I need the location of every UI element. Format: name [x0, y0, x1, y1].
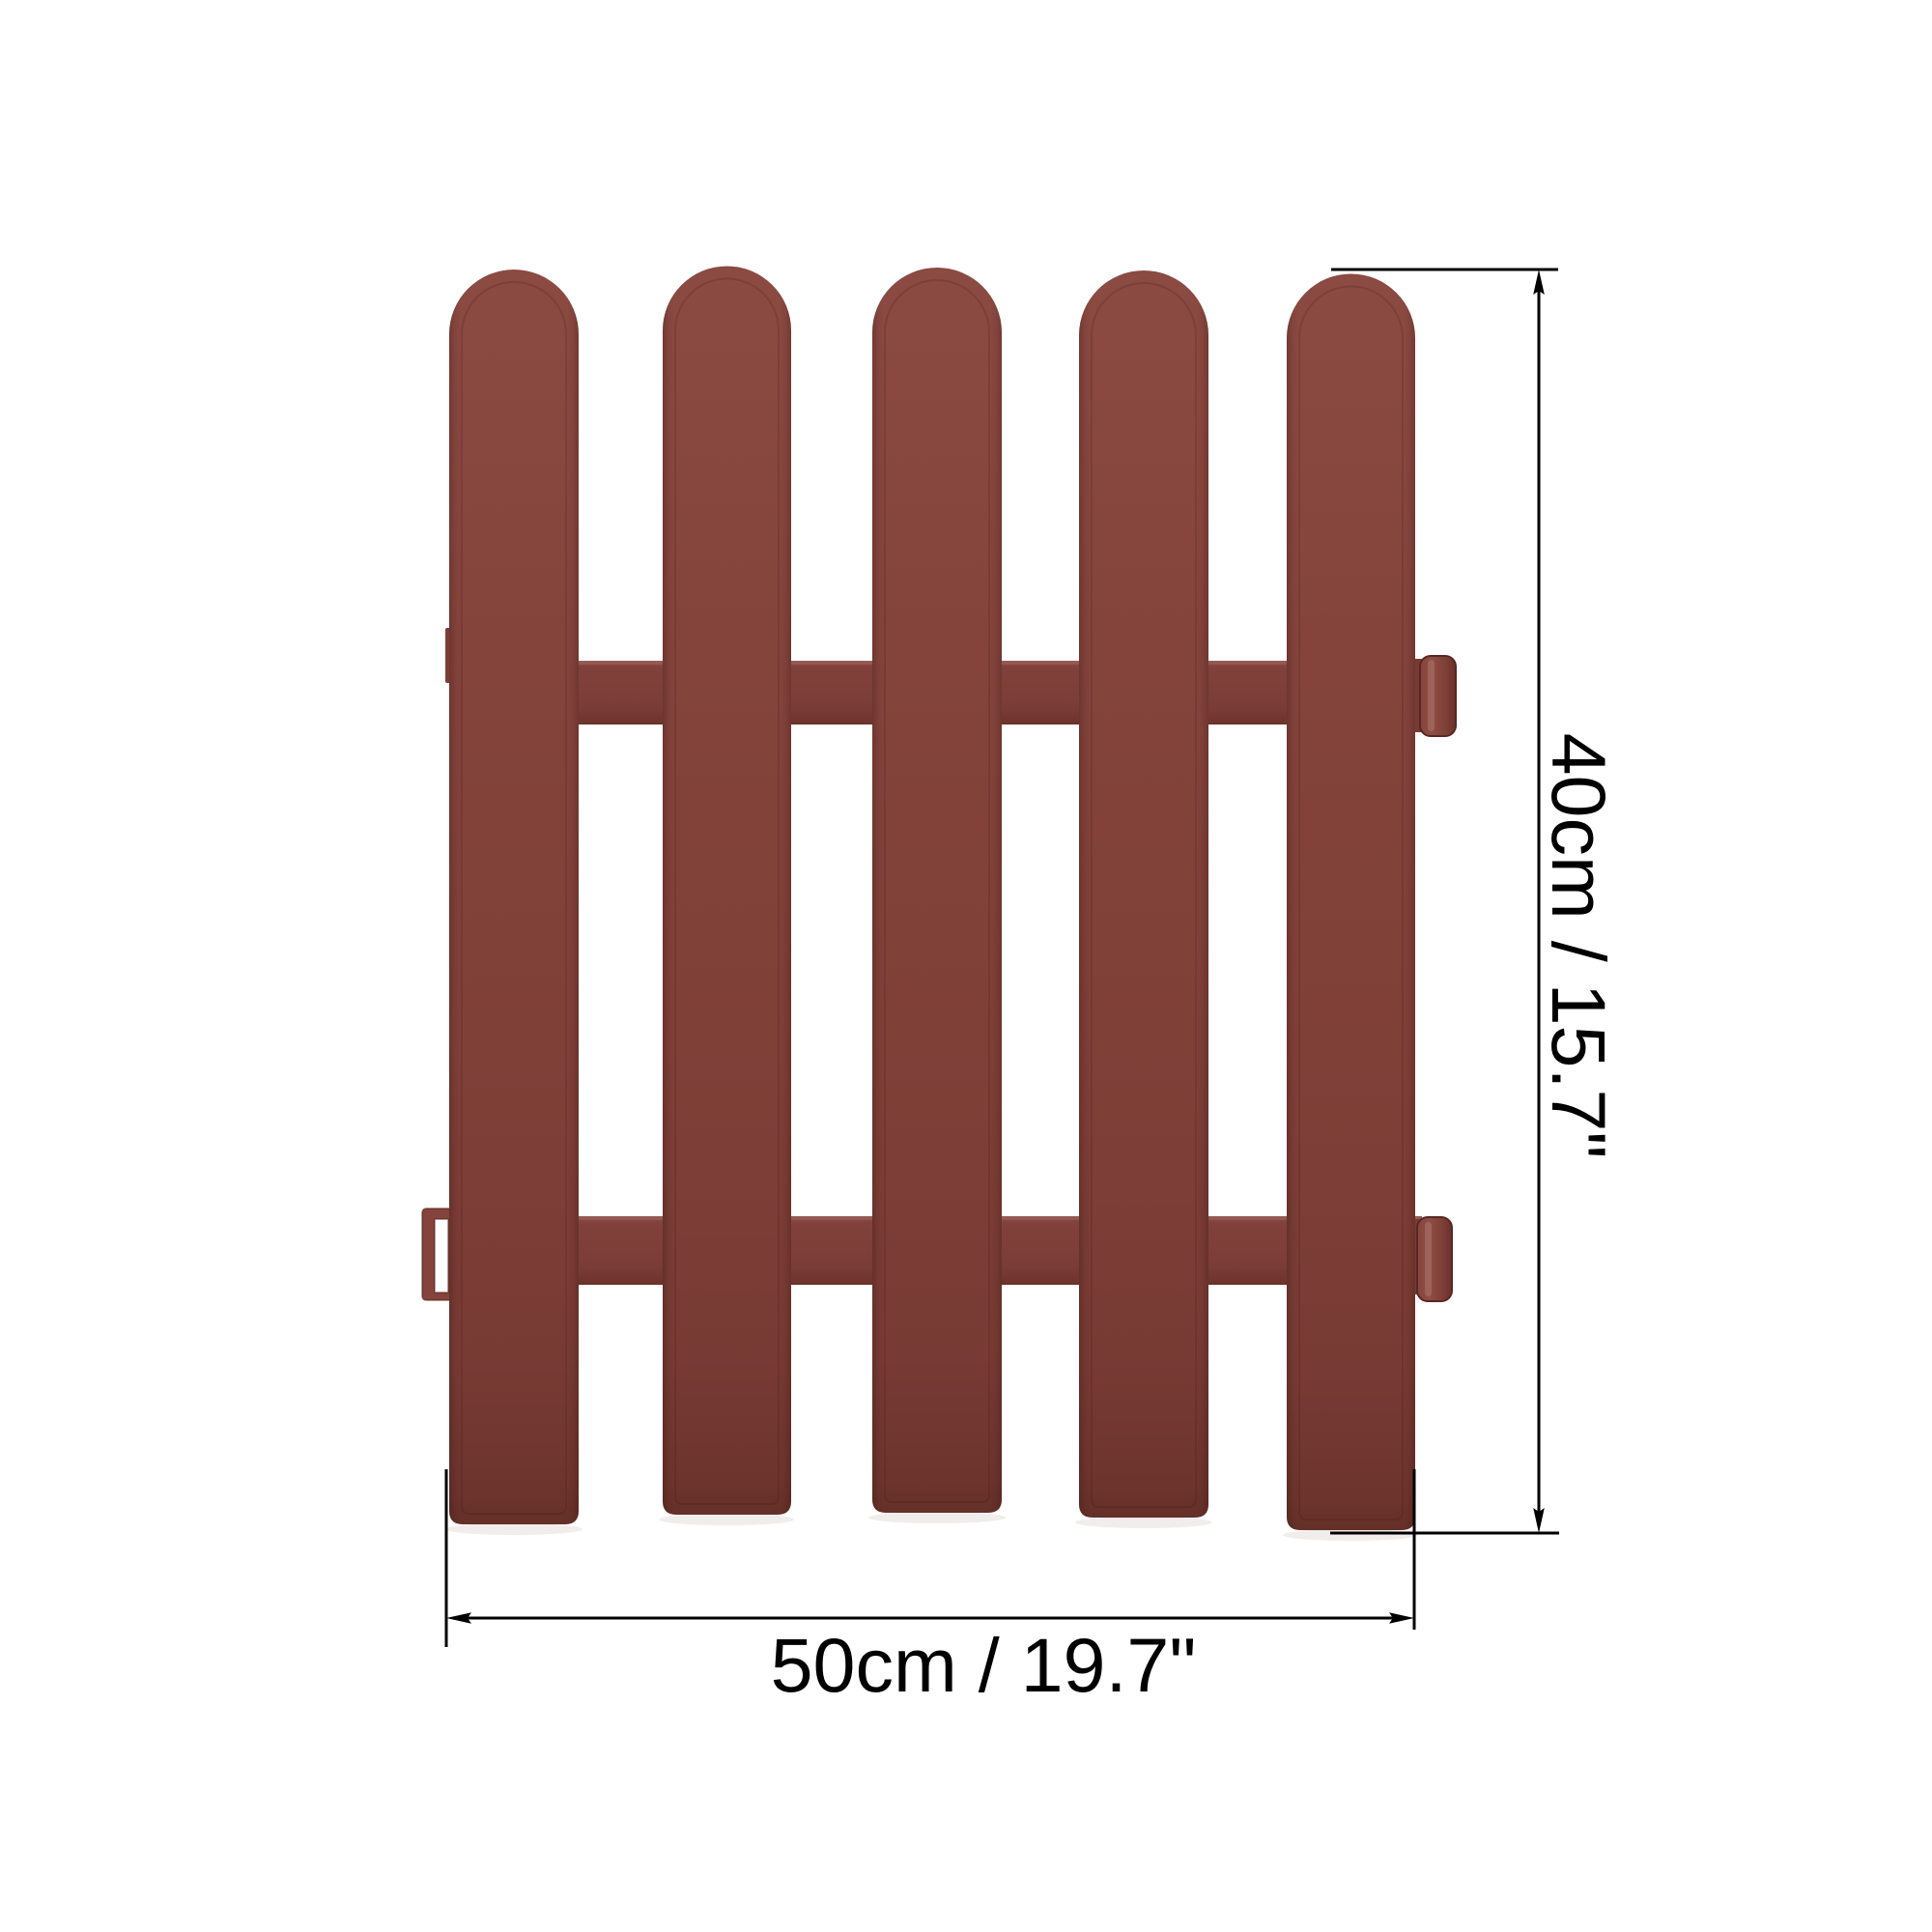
svg-text:50cm / 19.7": 50cm / 19.7" [771, 1622, 1197, 1708]
svg-text:40cm / 15.7": 40cm / 15.7" [1536, 733, 1622, 1159]
